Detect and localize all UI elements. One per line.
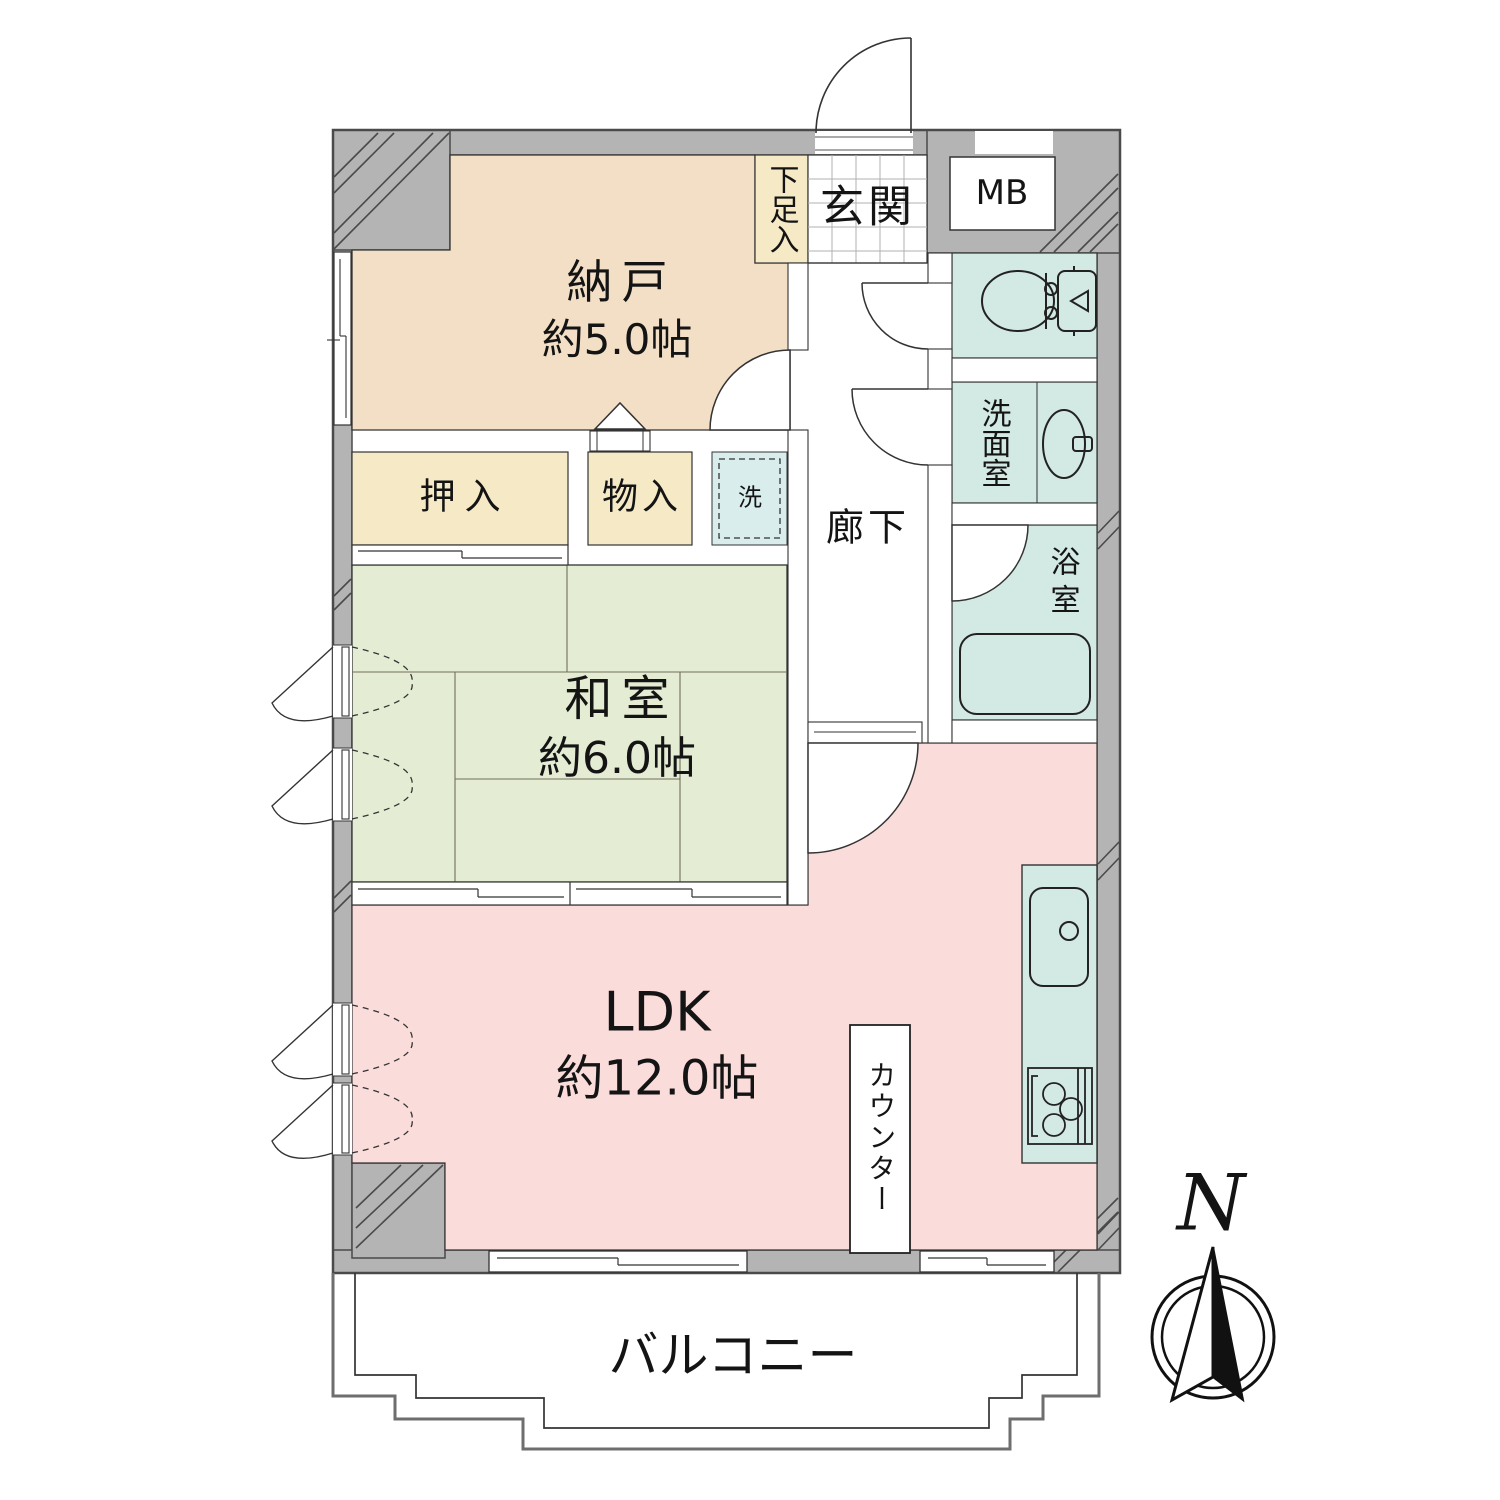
washitsu-name: 和室 [564,671,678,727]
sliding-window [489,1251,747,1272]
washitsu-sliding-doors [352,882,787,905]
wall-right [1097,130,1120,1273]
nando-size: 約5.0帖 [542,313,693,368]
label-balcony: バルコニー [609,1324,858,1389]
label-meter-box: MB [976,171,1029,215]
label-senmenshitsu: 洗面室 [974,398,1013,488]
room-toilet-floor [952,253,1097,358]
label-oshiire: 押入 [419,475,500,522]
label-yokushitsu: 浴室 [1043,546,1082,622]
oshiire-sliding-door [352,545,568,565]
genkan-name: 玄関 [820,181,916,232]
floor-plan-drawing [0,0,1500,1500]
oshiire-name: 押入 [419,477,509,518]
label-washer: 洗 [738,482,762,513]
nando-window [327,252,351,425]
label-getabako: 下足入 [762,164,801,254]
monoire-name: 物入 [602,477,682,518]
washitsu-size: 約6.0帖 [538,731,696,788]
label-counter: カウンター [862,1061,898,1216]
entrance-door [816,38,911,133]
ldk-size: 約12.0帖 [556,1048,759,1110]
rouka-name: 廊下 [826,505,910,549]
sliding-window [920,1251,1054,1272]
label-monoire: 物入 [602,475,678,522]
label-ldk: LDK 約12.0帖 [556,978,759,1111]
label-rouka: 廊下 [826,503,906,552]
compass-icon [1152,1247,1274,1400]
ldk-name: LDK [556,978,759,1048]
mb-wall-gap [975,131,1053,154]
label-north: N [1177,1153,1245,1254]
nando-name: 納戸 [566,255,676,309]
floor-plan: 納戸 約5.0帖 和室 約6.0帖 LDK 約12.0帖 バルコニー 玄関 下足… [0,0,1500,1500]
label-genkan: 玄関 [820,178,912,235]
label-nando: 納戸 約5.0帖 [542,253,693,367]
label-washitsu: 和室 約6.0帖 [538,668,696,788]
